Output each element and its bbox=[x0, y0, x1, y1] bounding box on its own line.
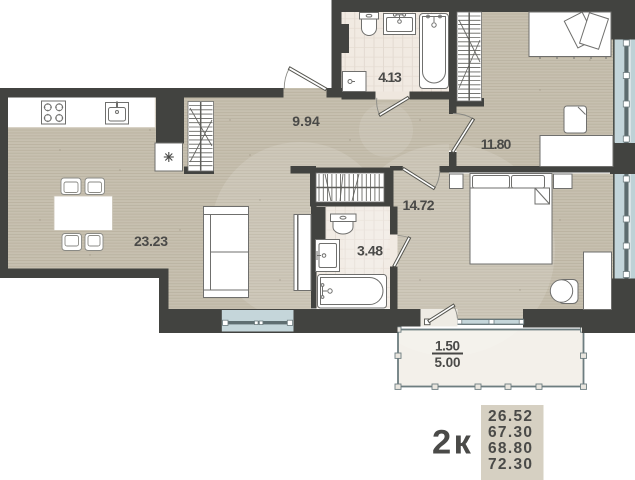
svg-text:9.94: 9.94 bbox=[292, 113, 320, 129]
svg-text:2к: 2к bbox=[432, 424, 473, 462]
svg-text:5.00: 5.00 bbox=[435, 355, 461, 370]
svg-text:3.48: 3.48 bbox=[357, 243, 383, 259]
svg-text:11.80: 11.80 bbox=[481, 136, 512, 152]
svg-text:26.52: 26.52 bbox=[488, 408, 533, 425]
svg-text:67.30: 67.30 bbox=[488, 424, 533, 441]
svg-text:72.30: 72.30 bbox=[488, 456, 533, 473]
svg-text:1.50: 1.50 bbox=[435, 338, 460, 353]
svg-text:68.80: 68.80 bbox=[488, 440, 533, 457]
svg-text:4.13: 4.13 bbox=[378, 69, 402, 85]
svg-text:14.72: 14.72 bbox=[403, 197, 435, 213]
svg-text:23.23: 23.23 bbox=[134, 233, 168, 249]
